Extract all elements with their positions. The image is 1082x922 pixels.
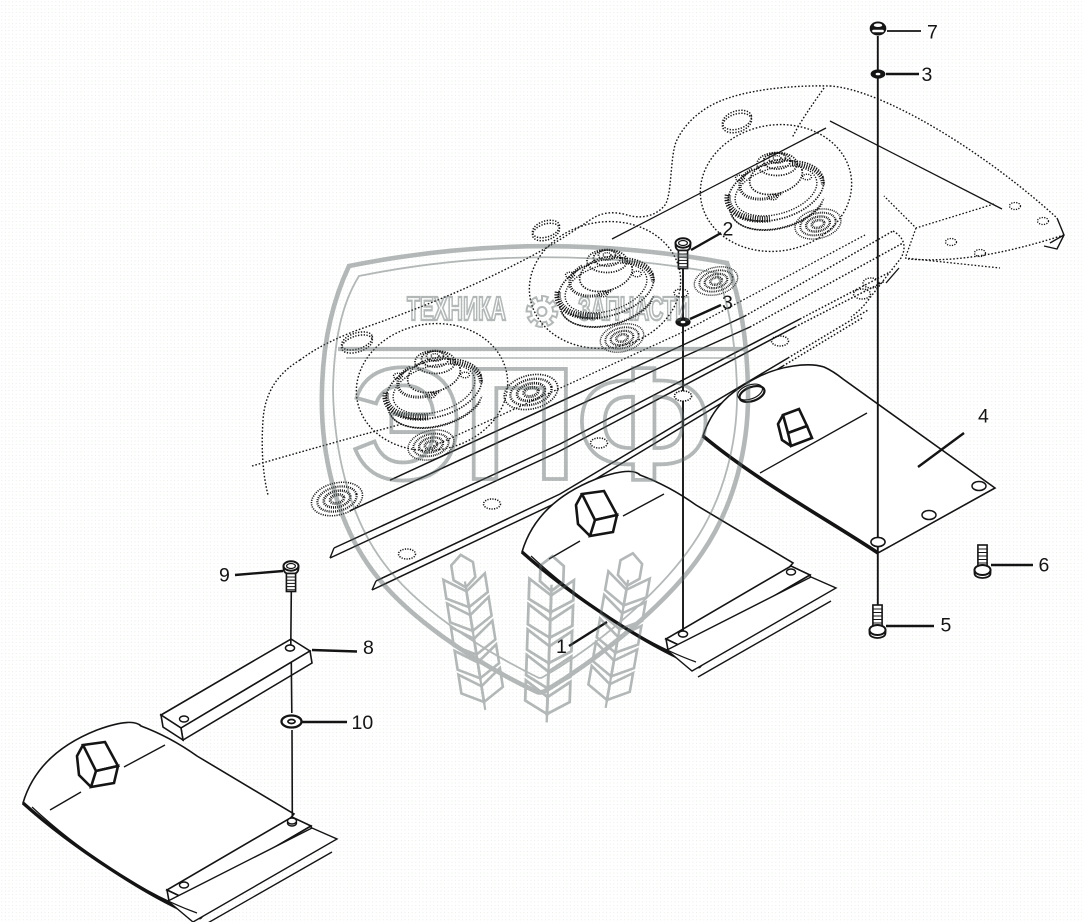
svg-text:8: 8	[363, 637, 374, 659]
svg-text:10: 10	[352, 712, 374, 734]
svg-text:3: 3	[922, 64, 933, 86]
svg-text:5: 5	[941, 615, 952, 637]
svg-text:7: 7	[927, 22, 938, 44]
svg-text:4: 4	[978, 406, 989, 428]
svg-text:ТЕХНИКА: ТЕХНИКА	[407, 290, 506, 327]
svg-text:ЭПФ: ЭПФ	[351, 334, 711, 513]
svg-text:9: 9	[219, 565, 230, 587]
svg-text:ЗАПЧАСТИ: ЗАПЧАСТИ	[578, 290, 690, 327]
svg-text:6: 6	[1039, 555, 1050, 577]
svg-text:2: 2	[723, 219, 734, 241]
